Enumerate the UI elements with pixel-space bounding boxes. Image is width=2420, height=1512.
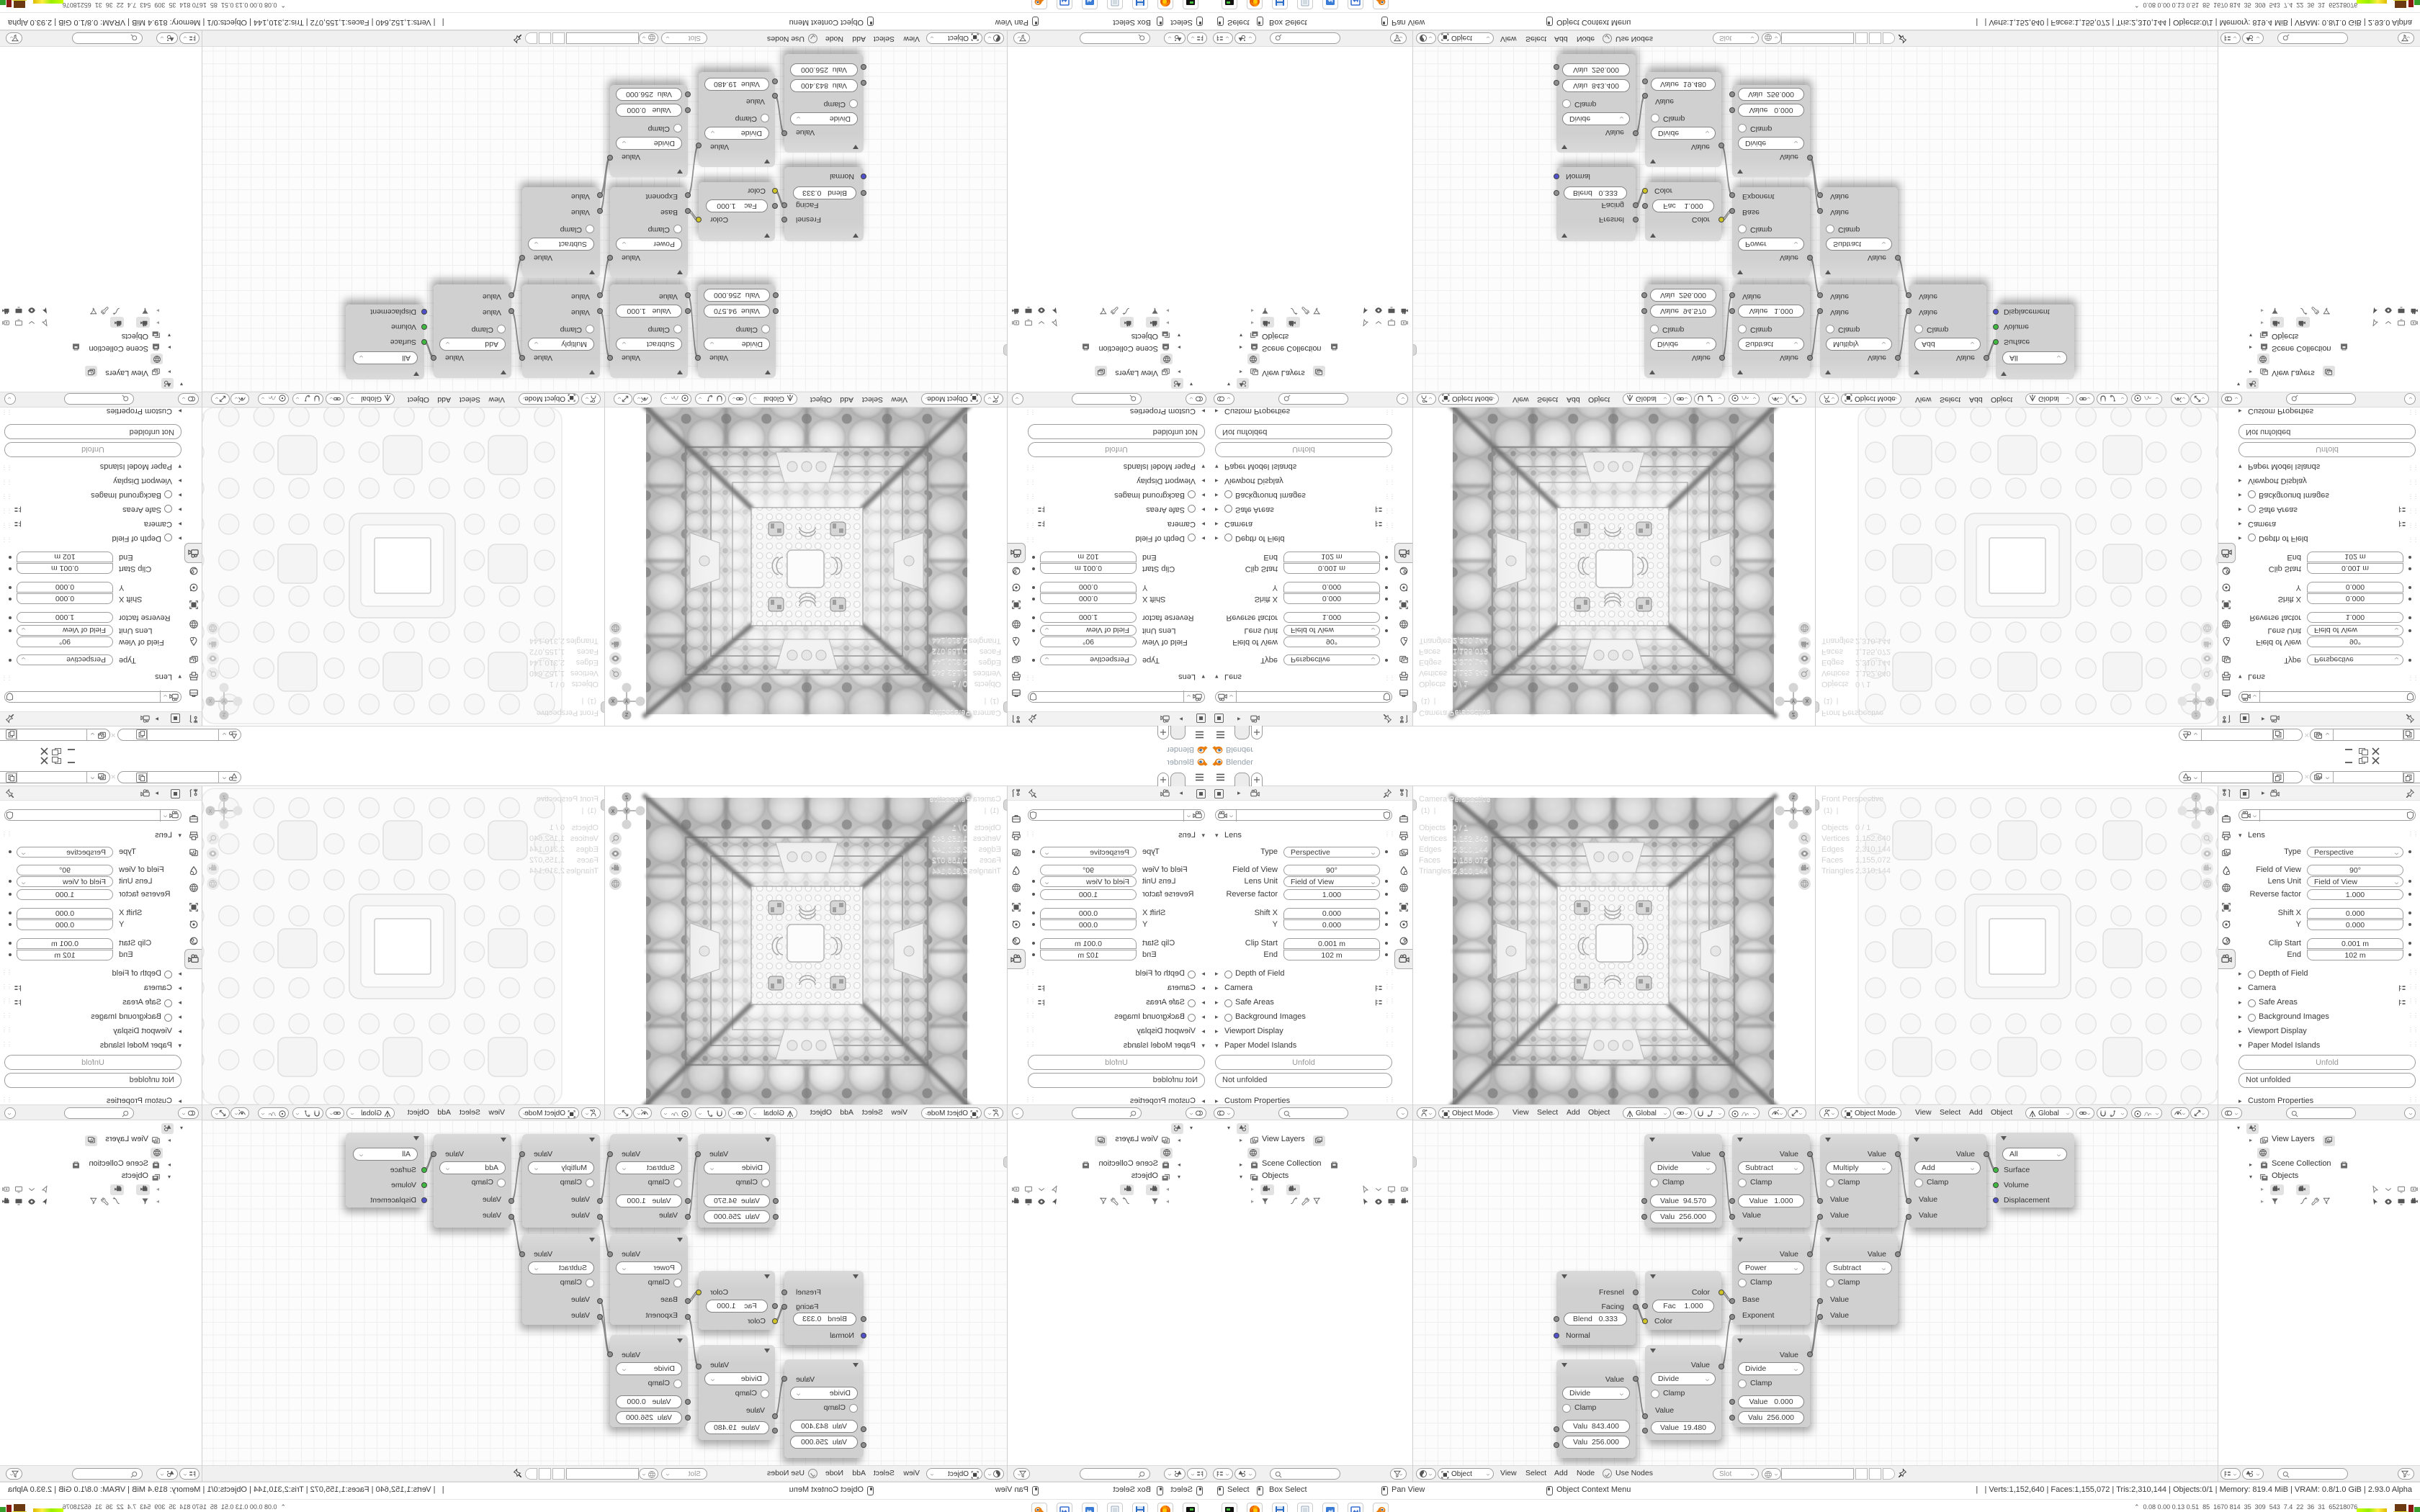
svg-text:Y: Y bbox=[222, 698, 225, 703]
svg-text:64: 64 bbox=[1278, 0, 1282, 1]
svg-text:X: X bbox=[208, 809, 212, 814]
svg-text:X: X bbox=[1806, 809, 1809, 814]
svg-text:Y: Y bbox=[1792, 698, 1796, 703]
svg-text:Z: Z bbox=[624, 796, 628, 801]
svg-text:X: X bbox=[611, 809, 614, 814]
svg-text:X: X bbox=[208, 698, 212, 703]
svg-text:Z: Z bbox=[1792, 711, 1796, 716]
svg-text:Y: Y bbox=[2195, 809, 2198, 814]
svg-text:Y: Y bbox=[1792, 809, 1796, 814]
svg-text:64: 64 bbox=[1138, 0, 1142, 1]
svg-text:Z: Z bbox=[222, 796, 225, 801]
svg-text:X: X bbox=[2208, 809, 2212, 814]
svg-text:Z: Z bbox=[2195, 796, 2198, 801]
svg-text:Y: Y bbox=[222, 809, 225, 814]
svg-text:Z: Z bbox=[1792, 796, 1796, 801]
svg-text:Y: Y bbox=[624, 809, 628, 814]
svg-text:Z: Z bbox=[624, 711, 628, 716]
svg-text:Y: Y bbox=[624, 698, 628, 703]
svg-text:X: X bbox=[611, 698, 614, 703]
svg-text:Z: Z bbox=[2195, 711, 2198, 716]
svg-text:X: X bbox=[2208, 698, 2212, 703]
svg-text:Z: Z bbox=[222, 711, 225, 716]
svg-text:Y: Y bbox=[2195, 698, 2198, 703]
svg-text:X: X bbox=[1806, 698, 1809, 703]
